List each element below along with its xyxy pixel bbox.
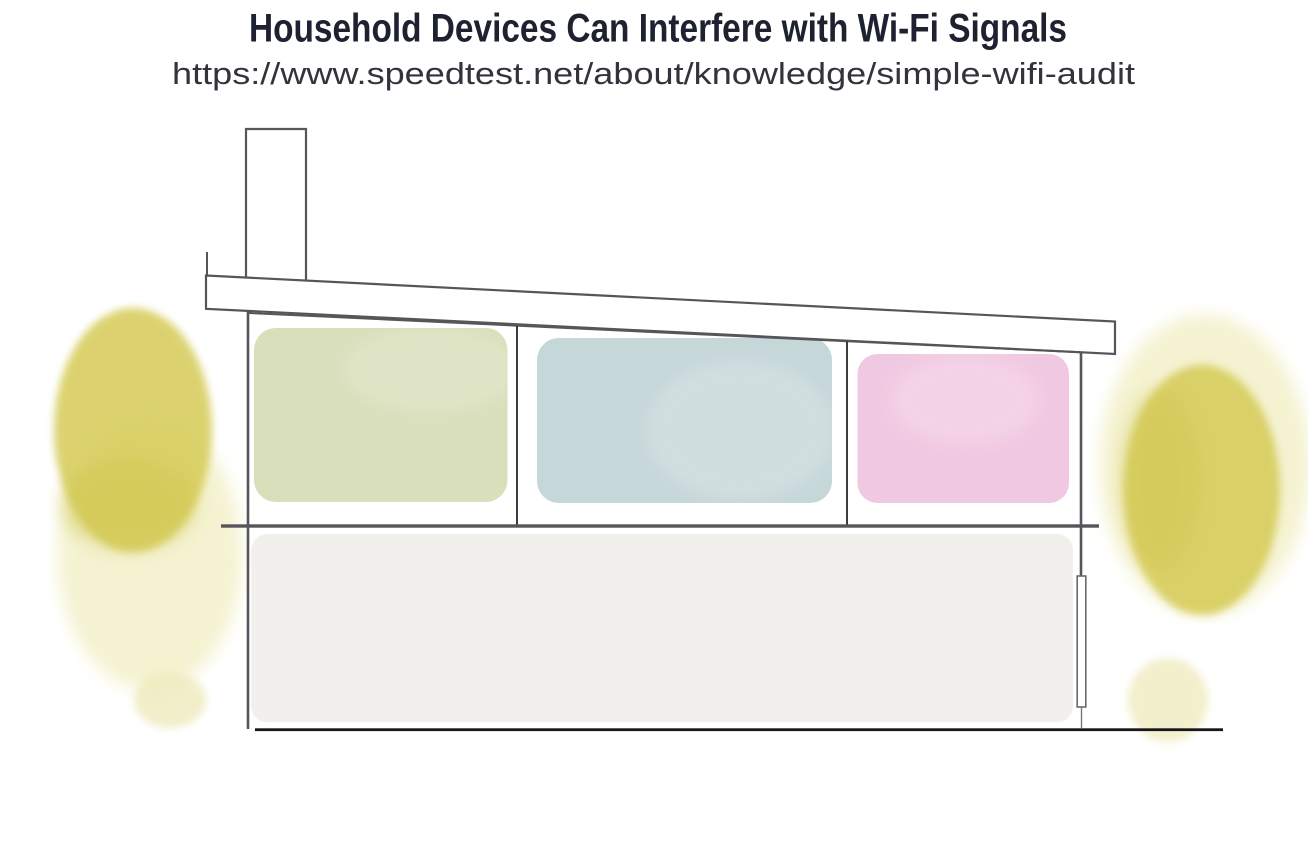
svg-text:Household Devices Can Interfer: Household Devices Can Interfere with Wi-…: [249, 6, 1067, 50]
svg-text:https://www.speedtest.net/abou: https://www.speedtest.net/about/knowledg…: [172, 56, 1135, 91]
